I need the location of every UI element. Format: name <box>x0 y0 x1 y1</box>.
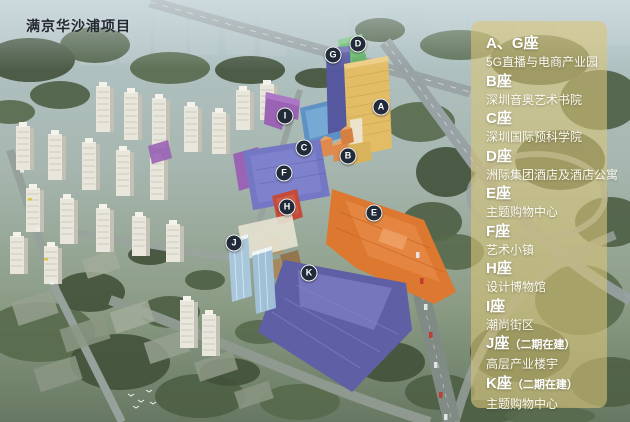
building-marker-I: I <box>277 108 294 125</box>
legend-building-label: F座 <box>486 222 599 241</box>
legend-building-label: E座 <box>486 184 599 203</box>
legend-description: 主题购物中心 <box>486 203 599 222</box>
legend-description: 洲际集团酒店及酒店公寓 <box>486 166 599 185</box>
legend-entry-7: H座设计博物馆 <box>486 259 599 297</box>
building-marker-H: H <box>279 199 296 216</box>
legend-description: 深圳国际预科学院 <box>486 128 599 147</box>
legend-building-label: H座 <box>486 259 599 278</box>
building-marker-C: C <box>296 140 313 157</box>
legend-entry-1: A、G座5G直播与电商产业园 <box>486 34 599 72</box>
legend-building-label: D座 <box>486 147 599 166</box>
legend-entry-10: K座（二期在建）主题购物中心 <box>486 374 599 414</box>
legend-building-label: B座 <box>486 72 599 91</box>
legend-entry-2: B座深圳音奥艺术书院 <box>486 72 599 110</box>
legend-building-label: J座（二期在建） <box>486 334 599 355</box>
legend-entry-3: C座深圳国际预科学院 <box>486 109 599 147</box>
building-marker-J: J <box>226 235 243 252</box>
legend-entry-9: J座（二期在建）高层产业楼宇 <box>486 334 599 374</box>
legend-phase-suffix: （二期在建） <box>512 379 578 391</box>
legend-entry-8: I座潮尚街区 <box>486 297 599 335</box>
legend-entry-6: F座艺术小镇 <box>486 222 599 260</box>
legend-entry-5: E座主题购物中心 <box>486 184 599 222</box>
building-marker-F: F <box>276 165 293 182</box>
legend-entry-4: D座洲际集团酒店及酒店公寓 <box>486 147 599 185</box>
building-marker-E: E <box>366 205 383 222</box>
legend-description: 主题购物中心 <box>486 395 599 414</box>
legend-description: 艺术小镇 <box>486 241 599 260</box>
project-aerial-rendering: 满京华沙浦项目 A、G座5G直播与电商产业园B座深圳音奥艺术书院C座深圳国际预科… <box>0 0 630 422</box>
page-title: 满京华沙浦项目 <box>26 16 131 36</box>
building-marker-D: D <box>350 36 367 53</box>
building-marker-B: B <box>340 148 357 165</box>
legend-building-label: A、G座 <box>486 34 599 53</box>
legend-building-label: C座 <box>486 109 599 128</box>
building-marker-K: K <box>301 265 318 282</box>
legend-description: 深圳音奥艺术书院 <box>486 91 599 110</box>
legend-list: A、G座5G直播与电商产业园B座深圳音奥艺术书院C座深圳国际预科学院D座洲际集团… <box>486 34 599 413</box>
legend-phase-suffix: （二期在建） <box>509 339 575 351</box>
building-marker-A: A <box>373 99 390 116</box>
legend-panel: A、G座5G直播与电商产业园B座深圳音奥艺术书院C座深圳国际预科学院D座洲际集团… <box>471 21 607 408</box>
legend-description: 设计博物馆 <box>486 278 599 297</box>
legend-description: 潮尚街区 <box>486 316 599 335</box>
legend-building-label: I座 <box>486 297 599 316</box>
building-marker-G: G <box>325 47 342 64</box>
legend-description: 5G直播与电商产业园 <box>486 53 599 72</box>
legend-building-label: K座（二期在建） <box>486 374 599 395</box>
legend-description: 高层产业楼宇 <box>486 355 599 374</box>
